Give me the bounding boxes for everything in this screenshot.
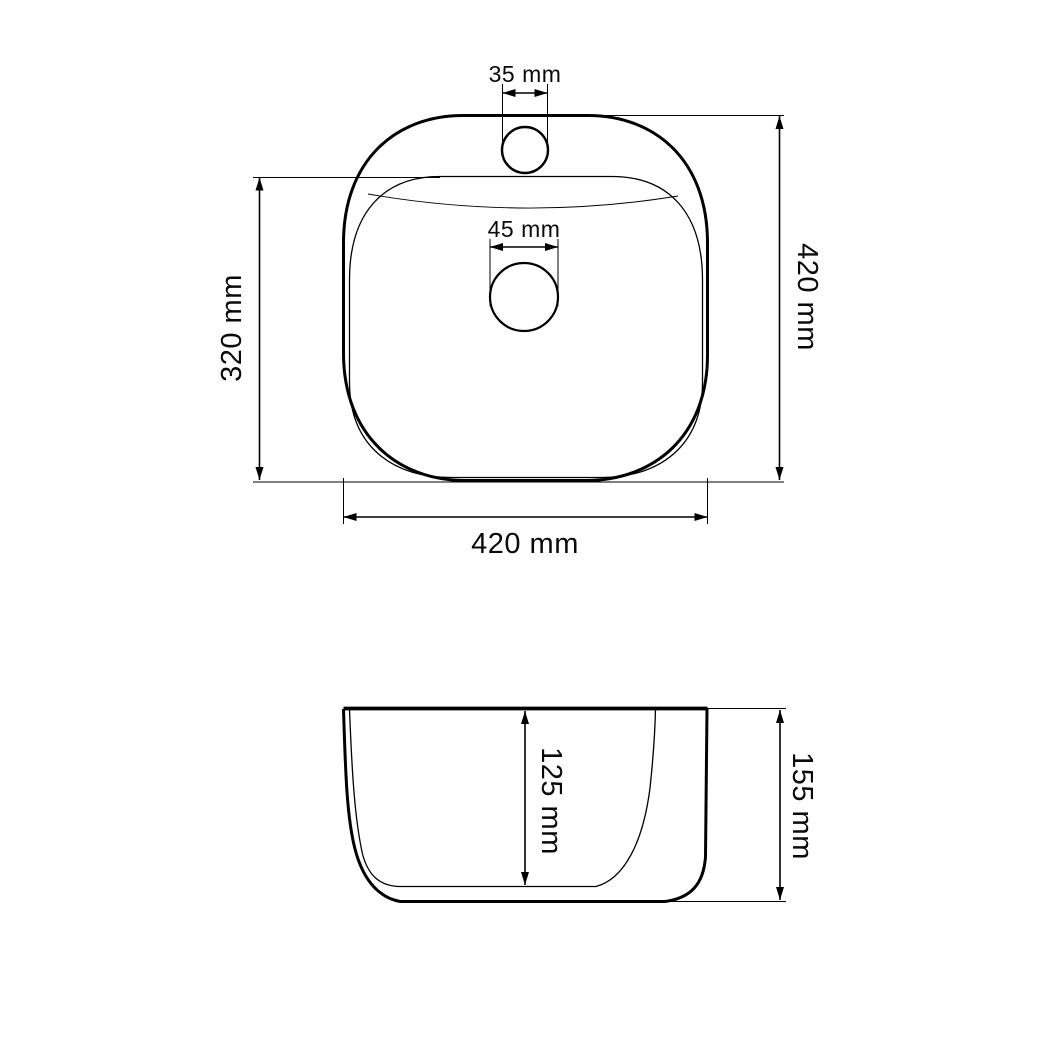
drain-hole [490,263,558,331]
side-view: 125 mm 155 mm [344,709,819,902]
faucet-hole [502,127,548,173]
top-view: 35 mm 45 mm 320 mm 420 mm [216,61,823,560]
dim-drain-hole: 45 mm [488,216,561,306]
dim-label-overall-height: 155 mm [786,752,818,860]
bowl-front-curve [368,194,678,208]
side-view-inner-profile [350,709,656,887]
dim-label-basin-depth: 125 mm [535,747,567,855]
dim-label-faucet-hole: 35 mm [489,61,562,87]
dim-overall-height-155: 155 mm [666,709,818,902]
dim-label-drain-hole: 45 mm [488,216,561,242]
dim-overall-420-bottom: 420 mm [344,478,708,560]
dim-faucet-hole: 35 mm [489,61,562,152]
dim-label-overall-420-bottom: 420 mm [471,528,579,560]
dim-label-overall-420-right: 420 mm [791,243,823,351]
drawing-canvas: 35 mm 45 mm 320 mm 420 mm [0,0,1050,1050]
dim-basin-320: 320 mm [216,178,440,481]
dim-basin-depth-125: 125 mm [525,711,567,885]
washbasin-dimension-drawing: 35 mm 45 mm 320 mm 420 mm [0,0,1050,1050]
top-view-outer-rim [344,116,708,481]
dim-label-basin-320: 320 mm [216,274,248,382]
